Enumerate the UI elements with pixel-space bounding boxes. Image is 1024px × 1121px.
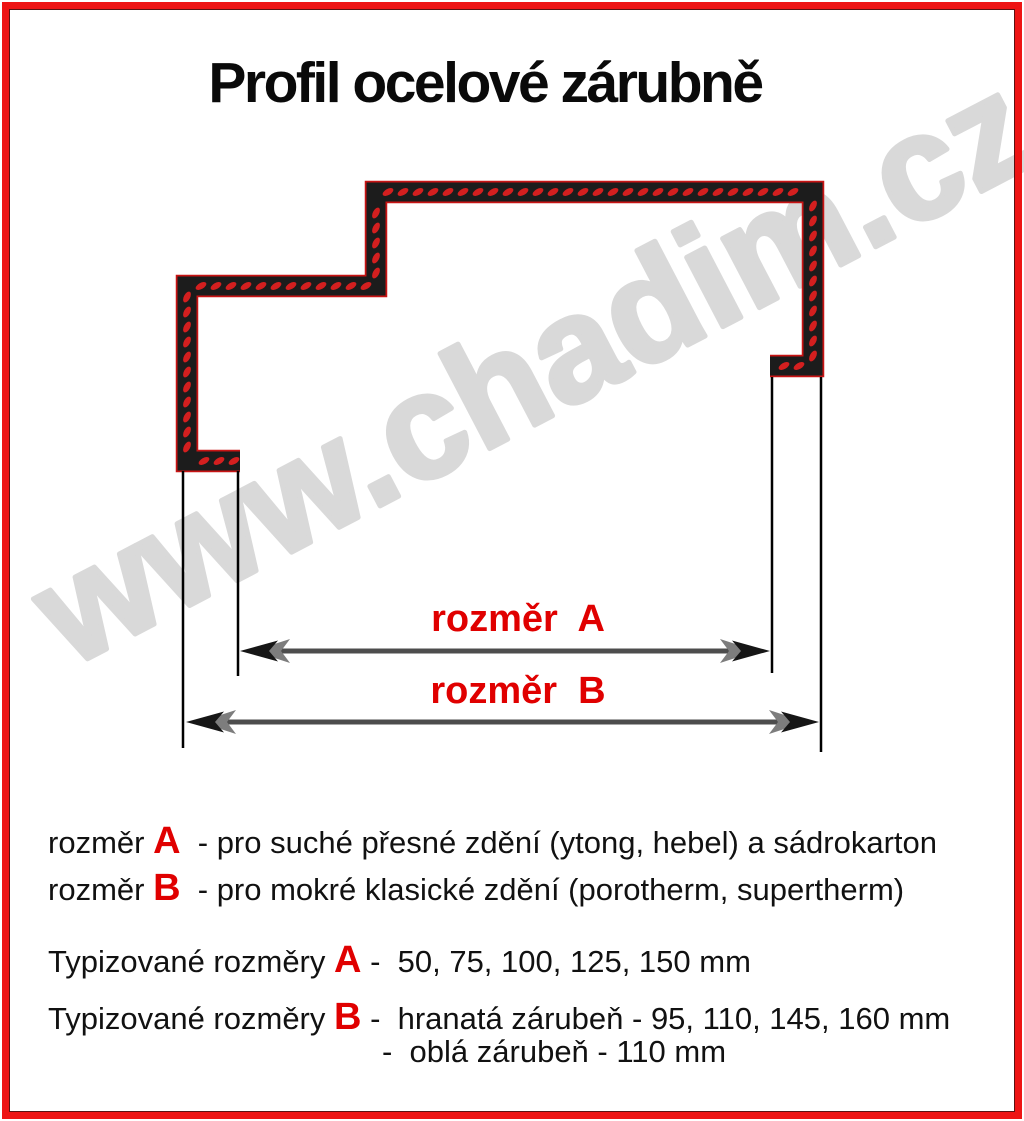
steel-door-frame-profile-page: Profil ocelové zárubně www.chadim.cz xyxy=(0,0,1024,1121)
page-title: Profil ocelové zárubně xyxy=(0,50,970,116)
typified-a-text: - 50, 75, 100, 125, 150 mm xyxy=(361,944,750,979)
legend-a-prefix: rozměr xyxy=(48,825,153,860)
legend-line-b: rozměr B - pro mokré klasické zdění (por… xyxy=(48,867,904,910)
legend-b-prefix: rozměr xyxy=(48,872,153,907)
typified-a-prefix: Typizované rozměry xyxy=(48,944,334,979)
dimension-a-label: rozměr A xyxy=(218,598,818,641)
legend-a-letter: A xyxy=(153,820,180,862)
legend-b-text: - pro mokré klasické zdění (porotherm, s… xyxy=(181,872,905,907)
dimension-arrow-b xyxy=(186,710,819,734)
dimension-b-label: rozměr B xyxy=(218,670,818,713)
legend-line-a: rozměr A - pro suché přesné zdění (ytong… xyxy=(48,820,937,863)
typified-line-b: Typizované rozměry B - hranatá zárubeň -… xyxy=(48,996,950,1039)
typified-a-letter: A xyxy=(334,939,361,981)
legend-b-letter: B xyxy=(153,867,180,909)
typified-b-letter: B xyxy=(334,996,361,1038)
typified-b-prefix: Typizované rozměry xyxy=(48,1001,334,1036)
dimension-arrow-a xyxy=(240,639,770,663)
typified-b-round-text: - oblá zárubeň - 110 mm xyxy=(382,1034,726,1069)
typified-line-a: Typizované rozměry A - 50, 75, 100, 125,… xyxy=(48,939,751,982)
typified-line-b-round: - oblá zárubeň - 110 mm xyxy=(382,1034,726,1070)
legend-a-text: - pro suché přesné zdění (ytong, hebel) … xyxy=(181,825,938,860)
typified-b-text: - hranatá zárubeň - 95, 110, 145, 160 mm xyxy=(361,1001,950,1036)
